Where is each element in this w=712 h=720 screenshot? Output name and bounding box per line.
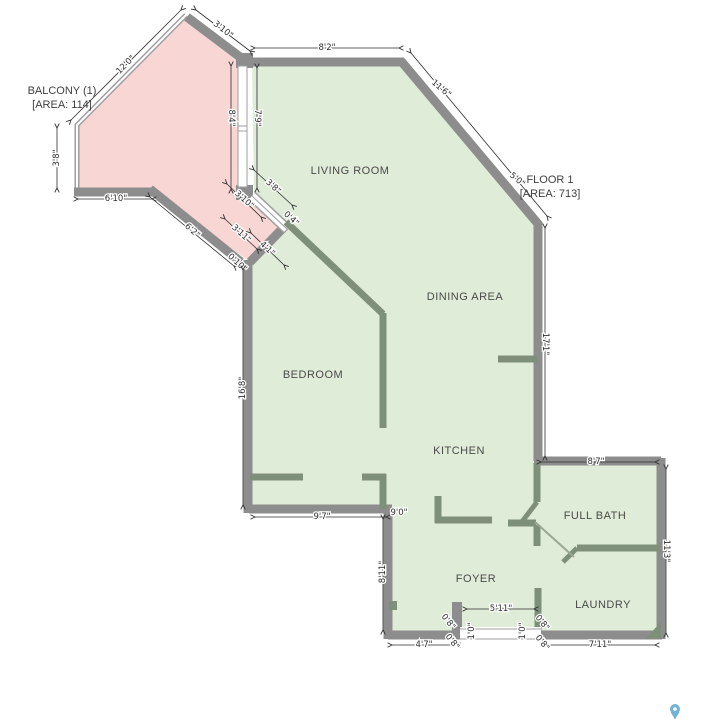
main-floor-area bbox=[252, 62, 660, 638]
balcony-title: BALCONY (1) bbox=[28, 85, 97, 97]
room-label: KITCHEN bbox=[433, 445, 485, 457]
room-label: BEDROOM bbox=[283, 369, 343, 381]
floor-plan-canvas: 3'10"8'2"11'6"5'0"12'0"8'4"7'9"3'8"6'10"… bbox=[0, 0, 712, 720]
map-pin-icon bbox=[670, 704, 680, 720]
dimension-label: 11'3" bbox=[661, 540, 671, 563]
room-label: FULL BATH bbox=[564, 510, 627, 522]
dimension-label: 3'8" bbox=[52, 149, 62, 166]
dimension-label: 6'10" bbox=[105, 194, 128, 204]
dimension-label: 7'11" bbox=[589, 640, 612, 650]
room-label: LIVING ROOM bbox=[311, 165, 390, 177]
room-label: DINING AREA bbox=[427, 291, 504, 303]
dimension-label: 16'8" bbox=[238, 377, 248, 400]
dimension-label: 7'9" bbox=[252, 109, 262, 126]
floor-area-value: [AREA: 713] bbox=[520, 188, 581, 200]
dimension-label: 8'11" bbox=[378, 561, 388, 584]
room-label: LAUNDRY bbox=[575, 599, 631, 611]
dimension-label: 8'2" bbox=[318, 43, 335, 53]
dimension-label: 5'11" bbox=[490, 604, 513, 614]
dimension-label: 17'1" bbox=[540, 333, 550, 356]
dimension-label: 9'0" bbox=[390, 508, 407, 518]
dimension-label: 1'0" bbox=[467, 622, 477, 639]
dimension-label: 8'7" bbox=[587, 457, 604, 467]
dimension-label: 4'7" bbox=[415, 640, 432, 650]
dimension-label: 9'7" bbox=[313, 512, 330, 522]
dimension-label: 1'0" bbox=[518, 622, 528, 639]
balcony-area-value: [AREA: 114] bbox=[32, 99, 92, 111]
foyer-wall-nub bbox=[389, 601, 397, 610]
window-living-west bbox=[238, 66, 247, 187]
room-label: FOYER bbox=[456, 573, 496, 585]
dimension-label: 8'4" bbox=[226, 109, 236, 126]
floor-title: FLOOR 1 bbox=[526, 174, 573, 186]
